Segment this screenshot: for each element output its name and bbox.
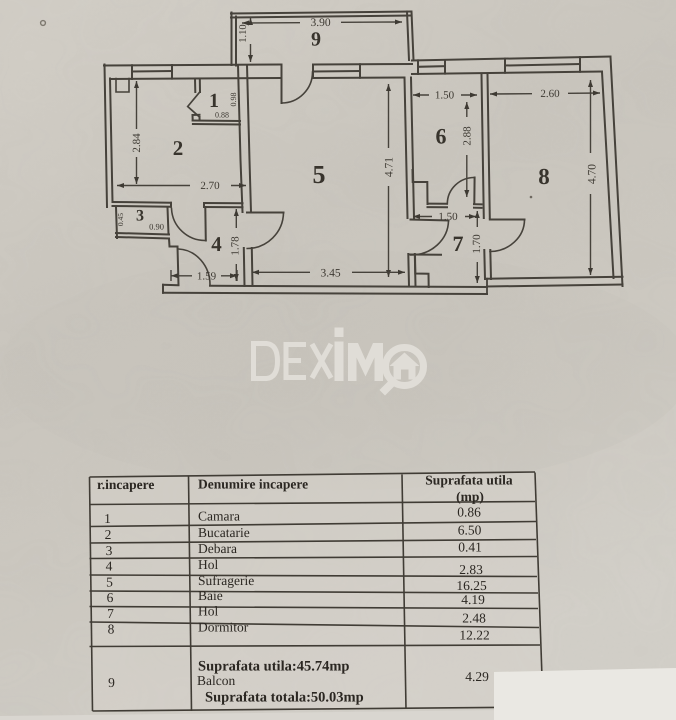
svg-text:1.10: 1.10 bbox=[238, 24, 249, 42]
svg-text:(mp): (mp) bbox=[456, 489, 484, 504]
svg-text:6: 6 bbox=[107, 590, 114, 605]
svg-text:0.88: 0.88 bbox=[215, 111, 229, 120]
svg-text:3.45: 3.45 bbox=[320, 267, 340, 279]
svg-text:Denumire incapere: Denumire incapere bbox=[198, 477, 308, 492]
svg-text:Suprafata totala:50.03mp: Suprafata totala:50.03mp bbox=[205, 690, 364, 706]
svg-text:5: 5 bbox=[313, 160, 326, 189]
svg-text:16.25: 16.25 bbox=[456, 578, 487, 593]
svg-text:1.59: 1.59 bbox=[197, 271, 217, 283]
svg-text:0.98: 0.98 bbox=[229, 93, 238, 107]
svg-text:1.50: 1.50 bbox=[435, 90, 455, 102]
svg-text:1: 1 bbox=[104, 511, 111, 526]
svg-text:4: 4 bbox=[211, 232, 222, 256]
svg-text:1: 1 bbox=[209, 90, 219, 112]
svg-text:1.78: 1.78 bbox=[230, 236, 242, 256]
svg-text:Baie: Baie bbox=[198, 588, 223, 603]
svg-text:2.60: 2.60 bbox=[540, 88, 560, 100]
svg-text:2.83: 2.83 bbox=[459, 562, 483, 577]
svg-text:5: 5 bbox=[106, 575, 113, 590]
svg-text:2.84: 2.84 bbox=[131, 133, 143, 153]
svg-text:9: 9 bbox=[108, 675, 115, 690]
svg-text:4.70: 4.70 bbox=[587, 164, 599, 184]
svg-text:6: 6 bbox=[436, 124, 447, 149]
svg-text:2: 2 bbox=[173, 136, 184, 160]
svg-text:8: 8 bbox=[538, 164, 550, 189]
svg-text:0.41: 0.41 bbox=[458, 540, 482, 555]
svg-text:0.90: 0.90 bbox=[149, 222, 164, 232]
svg-text:Hol: Hol bbox=[198, 557, 218, 572]
svg-text:4: 4 bbox=[106, 559, 113, 574]
svg-text:0.86: 0.86 bbox=[457, 505, 481, 520]
svg-text:2.70: 2.70 bbox=[200, 180, 220, 192]
svg-text:2.48: 2.48 bbox=[462, 611, 486, 626]
svg-text:2: 2 bbox=[105, 527, 112, 542]
svg-text:3: 3 bbox=[136, 208, 144, 225]
svg-text:7: 7 bbox=[453, 231, 464, 256]
svg-text:Suprafata utila: Suprafata utila bbox=[425, 473, 513, 488]
svg-text:12.22: 12.22 bbox=[459, 628, 489, 643]
svg-text:Hol: Hol bbox=[198, 604, 218, 619]
svg-text:Bucatarie: Bucatarie bbox=[198, 525, 250, 540]
svg-text:1.50: 1.50 bbox=[438, 211, 458, 223]
svg-text:7: 7 bbox=[107, 606, 114, 621]
svg-text:4.19: 4.19 bbox=[461, 592, 485, 607]
svg-text:1.70: 1.70 bbox=[471, 234, 483, 254]
svg-text:2.88: 2.88 bbox=[462, 126, 474, 146]
svg-text:3: 3 bbox=[106, 543, 113, 558]
svg-text:r.incapere: r.incapere bbox=[97, 477, 154, 492]
svg-text:Sufragerie: Sufragerie bbox=[198, 573, 254, 588]
svg-text:Balcon: Balcon bbox=[197, 673, 235, 688]
svg-text:6.50: 6.50 bbox=[458, 523, 482, 538]
svg-text:4.29: 4.29 bbox=[465, 669, 489, 684]
svg-text:3.90: 3.90 bbox=[310, 17, 330, 29]
svg-text:Camara: Camara bbox=[198, 509, 240, 524]
svg-text:Dormitor: Dormitor bbox=[198, 620, 249, 635]
svg-text:0.45: 0.45 bbox=[116, 213, 125, 226]
svg-text:8: 8 bbox=[108, 622, 115, 637]
svg-text:Debara: Debara bbox=[198, 541, 237, 556]
svg-text:4.71: 4.71 bbox=[384, 157, 396, 177]
svg-text:9: 9 bbox=[311, 29, 321, 51]
